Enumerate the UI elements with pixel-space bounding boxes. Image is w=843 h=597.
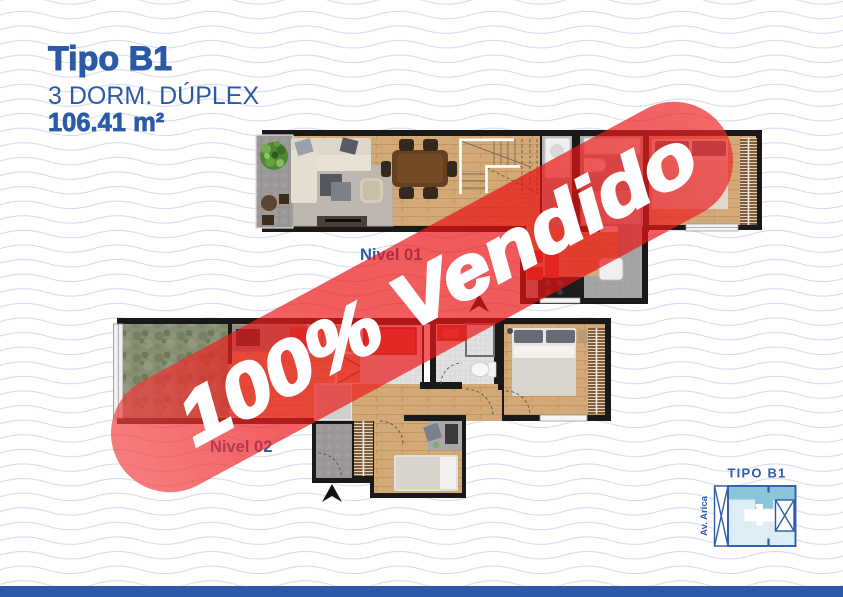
svg-text:3 DORM. DÚPLEX: 3 DORM. DÚPLEX xyxy=(48,81,259,110)
svg-text:Tipo B1: Tipo B1 xyxy=(48,40,172,78)
svg-text:Av. Arica: Av. Arica xyxy=(699,495,710,535)
svg-text:106.41 m²: 106.41 m² xyxy=(48,109,164,137)
svg-text:TIPO B1: TIPO B1 xyxy=(728,466,787,481)
